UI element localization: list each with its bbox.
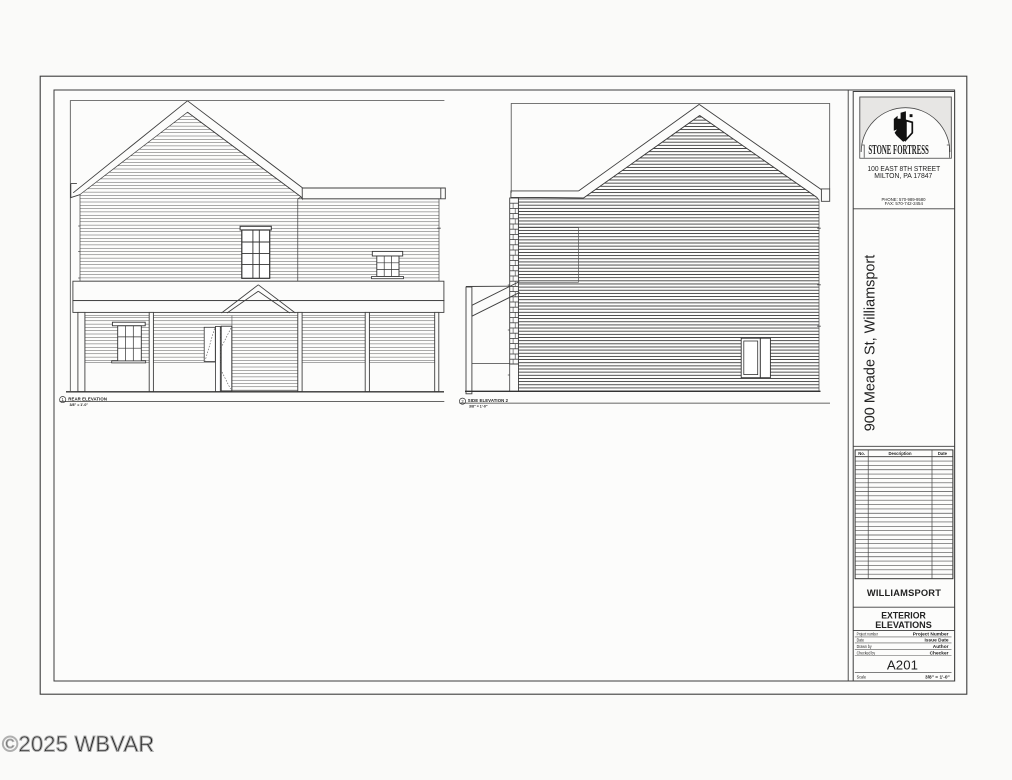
svg-text:Checked by: Checked by (857, 651, 876, 656)
svg-text:Project Number: Project Number (913, 631, 949, 637)
svg-text:Date: Date (857, 638, 865, 643)
svg-text:A201: A201 (887, 658, 918, 673)
svg-text:Project number: Project number (857, 631, 879, 636)
svg-text:ELEVATIONS: ELEVATIONS (875, 620, 932, 631)
svg-text:©2025 WBVAR: ©2025 WBVAR (2, 732, 155, 757)
svg-text:Description: Description (888, 451, 911, 456)
svg-text:FAX: 570-742-2454: FAX: 570-742-2454 (885, 201, 924, 206)
svg-text:No.: No. (858, 451, 865, 456)
svg-text:REAR ELEVATION: REAR ELEVATION (68, 396, 107, 401)
svg-text:SIDE ELEVATION 2: SIDE ELEVATION 2 (468, 398, 509, 403)
svg-text:WILLIAMSPORT: WILLIAMSPORT (867, 588, 941, 598)
svg-text:900 Meade St, Williamsport: 900 Meade St, Williamsport (862, 255, 878, 432)
svg-text:MILTON, PA 17847: MILTON, PA 17847 (874, 171, 932, 180)
svg-text:3/8" = 1'-0": 3/8" = 1'-0" (70, 403, 89, 407)
svg-text:Date: Date (938, 451, 948, 456)
svg-text:STONE FORTRESS: STONE FORTRESS (868, 143, 929, 158)
svg-text:Drawn by: Drawn by (857, 644, 873, 649)
svg-text:3/8" = 1'-0": 3/8" = 1'-0" (925, 674, 950, 680)
svg-text:Scale: Scale (857, 674, 867, 679)
svg-text:3/8" = 1'-0": 3/8" = 1'-0" (469, 405, 488, 409)
